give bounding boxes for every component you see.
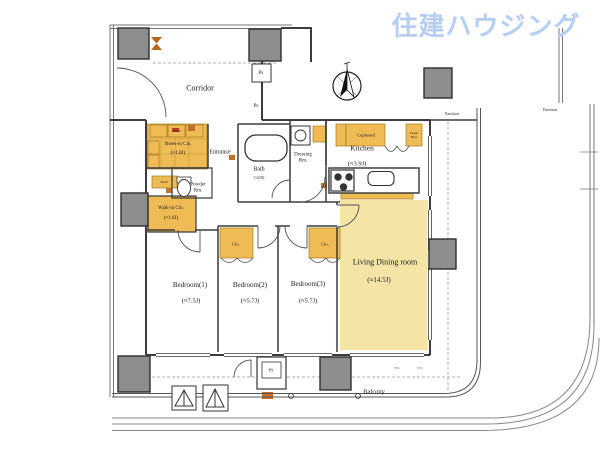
label-bedroom2: Bedroom(2) <box>233 281 267 289</box>
compass <box>333 62 361 100</box>
floorplan-image: 住建ハウジング Corridor Entrance Shoes-in Clo. … <box>0 0 600 451</box>
label-fix-window2: FIX <box>417 366 423 370</box>
label-bedroom1-area: (≈7.5J) <box>182 297 201 304</box>
label-ps-alcove: Ps <box>259 70 264 76</box>
label-cupboard: Cupboard <box>357 132 375 137</box>
label-bath: Bath <box>253 167 264 174</box>
label-powder-room: Powder Rm. <box>187 181 209 193</box>
kitchen-counter-front <box>341 193 413 199</box>
label-shoes-closet: Shoes-in Clo. <box>164 141 191 147</box>
label-partition-north: Partition <box>445 112 459 117</box>
label-entrance: Entrance <box>209 150 230 157</box>
label-shoes-closet-area: (≈1.0J) <box>171 150 185 156</box>
bathtub <box>245 135 287 161</box>
label-kitchen: Kitchen <box>350 145 374 154</box>
label-bath-area: (1418) <box>254 176 265 181</box>
label-balcony: Balcony <box>363 388 385 395</box>
label-bedroom3: Bedroom(3) <box>291 280 325 288</box>
label-shelf-top: Shelf <box>173 129 180 133</box>
label-corridor: Corridor <box>186 83 214 92</box>
label-clean-box: Clean Box <box>408 131 421 139</box>
label-bedroom3-area: (≈5.7J) <box>299 297 318 304</box>
walk-in-closet-fill <box>148 196 196 232</box>
evacuation-hatches <box>172 385 228 411</box>
laundry-box-fill <box>313 126 326 142</box>
label-ps-wall: Ps <box>254 103 259 109</box>
label-fix-window1: FIX <box>394 366 400 370</box>
corridor-symbol <box>151 37 162 50</box>
label-bedroom2-area: (≈5.7J) <box>241 297 260 304</box>
label-kitchen-area: (≈3.9J) <box>348 160 367 167</box>
label-ps-balcony: PS <box>268 367 273 372</box>
label-walk-in-closet: Walk-in Clo. <box>158 205 184 211</box>
label-closet2: Clo. <box>232 241 240 246</box>
washer <box>291 126 310 145</box>
label-partition-east: Partition <box>543 108 557 113</box>
label-dressing-room: Dressing Rm. <box>291 151 316 163</box>
kitchen-sink <box>368 172 394 186</box>
label-bedroom1: Bedroom(1) <box>173 281 207 289</box>
label-shelf-side: Shelf <box>160 180 167 184</box>
label-living-dining-area: (≈14.5J) <box>367 276 390 284</box>
brand-watermark: 住建ハウジング <box>386 6 586 43</box>
label-living-dining: Living Dining room <box>353 257 417 266</box>
floorplan-linework <box>0 0 600 451</box>
label-closet3: Clo. <box>321 241 329 246</box>
label-walk-in-closet-area: (≈1.6J) <box>164 215 178 221</box>
